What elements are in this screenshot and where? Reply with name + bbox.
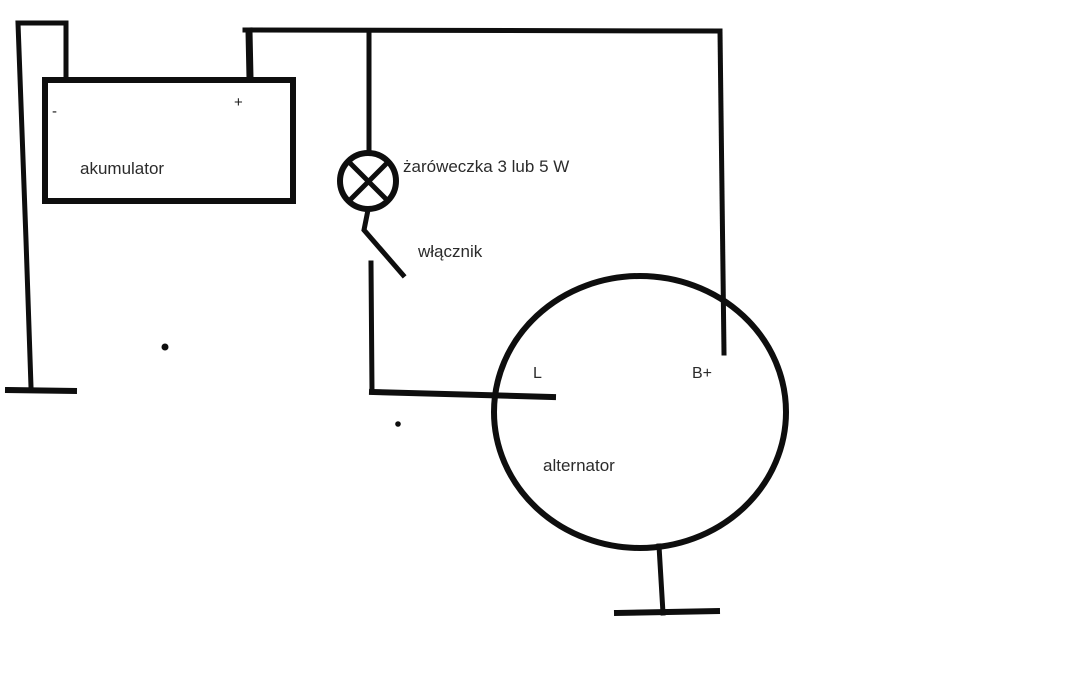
ink-dot-left	[162, 344, 169, 351]
ground-bottom	[617, 546, 717, 613]
ground-bottom-bar	[617, 611, 717, 613]
ground-bottom-wire	[659, 546, 663, 613]
terminal-bplus-label: B+	[692, 365, 712, 382]
circuit-diagram: - + akumulator żaróweczka 3 lub 5 W	[0, 0, 1080, 675]
switch-symbol	[364, 210, 403, 392]
bulb-icon	[340, 153, 396, 209]
bulb-label: żaróweczka 3 lub 5 W	[403, 157, 569, 176]
switch-label: włącznik	[417, 242, 483, 261]
battery-label: akumulator	[80, 159, 164, 178]
alternator-circle	[494, 276, 786, 548]
battery-plus-sign: +	[234, 94, 243, 111]
switch-fixed-wire	[371, 263, 372, 392]
battery-minus-sign: -	[52, 103, 57, 120]
alternator-label: alternator	[543, 456, 615, 475]
ground-left	[8, 390, 74, 391]
wire-battery-plus-riser	[249, 31, 250, 78]
wire-to-l-terminal	[372, 392, 553, 397]
wire-to-bplus-terminal	[720, 31, 724, 353]
terminal-l-label: L	[533, 365, 542, 382]
alternator-symbol: L B+ alternator	[494, 276, 786, 548]
battery: - + akumulator	[45, 80, 293, 201]
ground-left-bar	[8, 390, 74, 391]
battery-rectangle	[45, 80, 293, 201]
wire-top-rail	[245, 30, 720, 31]
schematic-canvas: - + akumulator żaróweczka 3 lub 5 W	[0, 0, 1080, 675]
positive-wire	[249, 31, 250, 78]
ink-dot-center	[395, 421, 401, 427]
